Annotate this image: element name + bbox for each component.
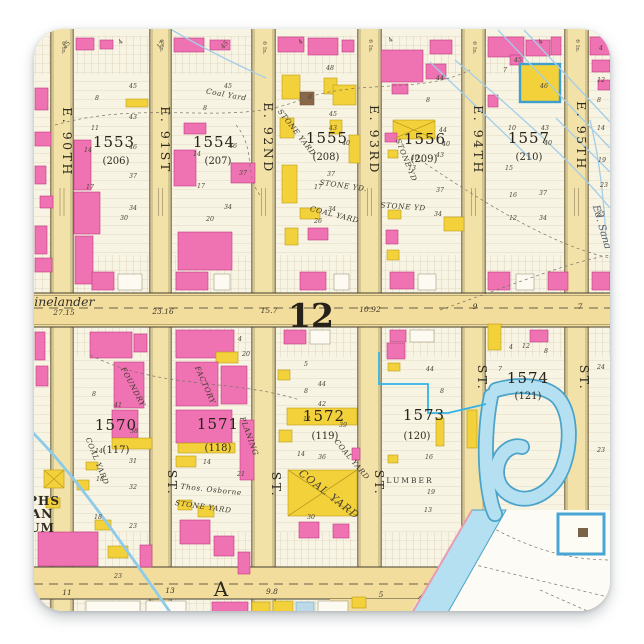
map-label: 43: [128, 114, 137, 121]
building: [333, 85, 356, 105]
map-label: 19: [427, 489, 435, 496]
building: [278, 370, 290, 380]
map-label: 19: [598, 157, 606, 164]
map-label: 10.92: [359, 305, 381, 314]
building: [75, 236, 93, 284]
building: [35, 88, 48, 110]
map-label: 43: [435, 152, 444, 159]
map-label: 13: [408, 165, 416, 172]
map-label: 8: [308, 94, 312, 101]
building: [35, 132, 51, 146]
map-label: 37: [239, 170, 247, 177]
map-label: 12: [597, 77, 605, 84]
building: [238, 552, 250, 574]
map-label: 9.8: [266, 587, 278, 596]
map-label: 23: [599, 182, 608, 189]
map-label: 36: [318, 454, 326, 461]
map-label: 34: [129, 205, 137, 212]
map-label: 5: [379, 590, 384, 599]
street-label-st: ST.: [577, 365, 592, 392]
map-label: 39: [339, 422, 347, 429]
map-label: 10: [411, 155, 419, 162]
map-label: 42: [317, 401, 326, 408]
map-label: 23: [113, 573, 122, 580]
map-label: 18: [94, 514, 102, 521]
map-label: 14: [193, 151, 201, 158]
building: [418, 274, 436, 290]
map-label: 13: [165, 586, 175, 595]
map-label: 7: [503, 67, 507, 74]
building: [488, 272, 510, 290]
building: [388, 455, 398, 463]
building: [488, 324, 501, 350]
building: [76, 38, 94, 50]
map-label: 15: [505, 165, 513, 172]
map-label: 48: [325, 65, 334, 72]
map-label: 6 In.: [471, 41, 477, 55]
map-label: 6 In.: [367, 39, 373, 53]
edge-text: PHS: [34, 494, 60, 508]
map-label: 13: [424, 507, 432, 514]
building: [176, 272, 208, 290]
building: [252, 602, 270, 611]
map-label: 8: [440, 388, 444, 395]
map-label: 46: [228, 143, 237, 150]
map-label: 11: [91, 125, 99, 132]
street-label-e90th: E. 90TH: [60, 107, 75, 177]
building: [126, 99, 148, 107]
building: [35, 332, 45, 360]
map-label: 44: [425, 366, 434, 373]
street-label-st: ST.: [269, 472, 284, 499]
map-label: 32: [129, 484, 137, 491]
building: [488, 37, 524, 57]
map-label: 8: [304, 388, 308, 395]
building: [516, 274, 534, 290]
map-label: 41: [113, 402, 122, 409]
building: [390, 330, 406, 342]
ward-number: (117): [103, 445, 130, 456]
map-label: 45: [128, 83, 137, 90]
map-label: 37: [539, 190, 547, 197]
map-label: 45: [513, 57, 522, 64]
ward-number: (207): [205, 156, 232, 167]
map-label: 37: [327, 171, 335, 178]
street-label-e92nd: E. 92ND: [261, 102, 276, 173]
map-label: 12: [522, 343, 530, 350]
ward-number: (210): [516, 152, 543, 163]
map-label: 11: [62, 588, 72, 597]
block-number: 1574: [507, 369, 549, 387]
map-label: 27.15: [52, 308, 75, 317]
building: [92, 272, 114, 290]
map-label: 34: [434, 211, 442, 218]
atlas-map: E. 90THE. 91STE. 92NDE. 93RDE. 94THE. 95…: [34, 29, 610, 611]
map-label: 44: [438, 127, 447, 134]
map-label: 8: [597, 97, 601, 104]
block-number: 1573: [403, 406, 445, 424]
building: [214, 536, 234, 556]
map-label: 17: [197, 183, 205, 190]
map-label: 14: [597, 125, 605, 132]
building: [333, 524, 349, 538]
ward-number: (208): [313, 152, 340, 163]
building: [467, 410, 477, 448]
building: [308, 228, 328, 240]
building: [176, 456, 196, 467]
pier-structure-detail: [578, 528, 588, 537]
map-label: 10: [508, 125, 516, 132]
ward-number: (206): [103, 156, 130, 167]
map-label: 25: [596, 211, 605, 218]
map-label: 14: [95, 448, 103, 455]
map-label: 30: [120, 215, 128, 222]
map-label: 43: [540, 125, 549, 132]
map-label: 6 In.: [574, 39, 580, 53]
building: [38, 532, 98, 566]
map-label: 7: [578, 302, 583, 311]
product-photo-background: E. 90THE. 91STE. 92NDE. 93RDE. 94THE. 95…: [0, 0, 644, 644]
avenue-name-rhinelander: illiam Rhinelander: [34, 294, 96, 309]
building: [300, 272, 326, 290]
street-label-st: ST.: [165, 470, 180, 497]
building: [35, 258, 52, 272]
building: [388, 150, 398, 158]
map-label: 14: [297, 451, 305, 458]
building: [349, 135, 360, 163]
yard-label: LUMBER: [386, 476, 433, 485]
map-label: 7: [498, 366, 502, 373]
map-label: 15.7: [261, 306, 278, 315]
edge-text: UM: [34, 521, 55, 535]
building: [35, 166, 46, 184]
building: [352, 597, 366, 608]
map-label: 40: [341, 140, 350, 147]
building: [100, 40, 113, 49]
plate-number: 12: [288, 296, 334, 335]
map-label: 24: [596, 364, 605, 371]
building: [35, 226, 47, 254]
map-label: 20: [205, 216, 214, 223]
block-number: 1571: [197, 415, 239, 433]
street-label-st: ST.: [475, 365, 490, 392]
building: [212, 602, 248, 611]
map-label: 40: [441, 141, 450, 148]
building: [318, 601, 348, 611]
building: [282, 165, 297, 203]
building: [388, 210, 401, 219]
building: [390, 272, 414, 289]
map-label: 23: [128, 523, 137, 530]
street-label-e91st: E. 91ST: [158, 106, 173, 173]
map-label: 4: [508, 344, 513, 351]
building: [282, 75, 300, 99]
map-label: 46: [539, 83, 548, 90]
building: [592, 272, 610, 290]
avenue-a-label: A: [213, 577, 230, 601]
building: [592, 60, 610, 72]
building: [381, 50, 423, 82]
map-label: 8: [92, 391, 96, 398]
building: [86, 601, 140, 611]
map-label: 5: [304, 361, 308, 368]
street-label-e95th: E. 95TH: [574, 101, 589, 171]
map-label: 20: [241, 351, 250, 358]
map-label: 44: [435, 75, 444, 82]
map-label: 44: [317, 381, 326, 388]
map-label: 6 In.: [261, 41, 267, 55]
map-label: 26: [313, 218, 322, 225]
building: [530, 330, 548, 342]
building: [334, 274, 349, 290]
map-label: 4: [598, 45, 603, 52]
map-label: 31: [129, 458, 137, 465]
building: [430, 40, 452, 54]
map-label: 30: [307, 514, 315, 521]
building: [279, 430, 292, 442]
building: [548, 272, 568, 290]
building: [410, 330, 434, 342]
street-label-e93rd: E. 93RD: [367, 105, 382, 175]
map-label: 16: [509, 192, 517, 199]
building: [296, 602, 314, 611]
map-label: 8: [203, 105, 207, 112]
building: [551, 37, 561, 55]
building: [285, 228, 298, 245]
map-label: 8: [426, 97, 430, 104]
ward-number: (120): [404, 431, 431, 442]
building: [308, 38, 338, 55]
building: [214, 274, 230, 290]
ward-number: (118): [205, 443, 232, 454]
square-sticker: E. 90THE. 91STE. 92NDE. 93RDE. 94THE. 95…: [34, 29, 610, 611]
edge-text: AN: [34, 507, 53, 521]
building: [90, 332, 132, 358]
map-label: 45: [328, 111, 337, 118]
map-label: 8: [95, 95, 99, 102]
map-label: 23: [596, 447, 605, 454]
map-label: 34: [539, 215, 547, 222]
map-label: 17: [314, 184, 322, 191]
building: [180, 520, 210, 544]
map-label: 14: [203, 459, 211, 466]
building: [178, 232, 232, 270]
map-label: 34: [328, 206, 336, 213]
building: [74, 192, 100, 234]
building: [118, 274, 142, 290]
building: [40, 196, 53, 208]
map-label: 17: [86, 184, 94, 191]
street-label-e94th: E. 94TH: [471, 105, 486, 175]
building: [36, 366, 48, 386]
building: [134, 334, 147, 352]
map-label: 34: [224, 204, 232, 211]
building: [273, 601, 293, 611]
map-label: 12: [509, 215, 517, 222]
map-label: 11: [303, 416, 311, 423]
map-label: 46: [128, 144, 137, 151]
map-label: 9: [473, 302, 478, 311]
map-label: 43: [328, 125, 337, 132]
building: [444, 217, 464, 231]
map-label: 40: [543, 140, 552, 147]
map-label: 37: [436, 187, 444, 194]
building: [299, 522, 319, 538]
map-label: 21: [236, 471, 245, 478]
building: [140, 545, 152, 567]
map-label: 16: [425, 454, 433, 461]
building: [388, 363, 400, 371]
building: [387, 343, 405, 359]
building: [387, 250, 399, 260]
map-label: 45: [223, 83, 232, 90]
building: [216, 352, 238, 363]
building: [488, 95, 498, 107]
street-label-st: ST.: [372, 470, 387, 497]
map-label: 38: [130, 428, 138, 435]
map-label: 14: [84, 147, 92, 154]
building: [386, 230, 398, 244]
building: [221, 366, 247, 404]
map-label: 18: [96, 476, 104, 483]
map-label: 8: [544, 348, 548, 355]
ward-number: (121): [515, 391, 542, 402]
map-label: 23.16: [151, 307, 174, 316]
map-label: 37: [129, 173, 137, 180]
map-label: 4: [237, 336, 242, 343]
building: [342, 40, 354, 52]
